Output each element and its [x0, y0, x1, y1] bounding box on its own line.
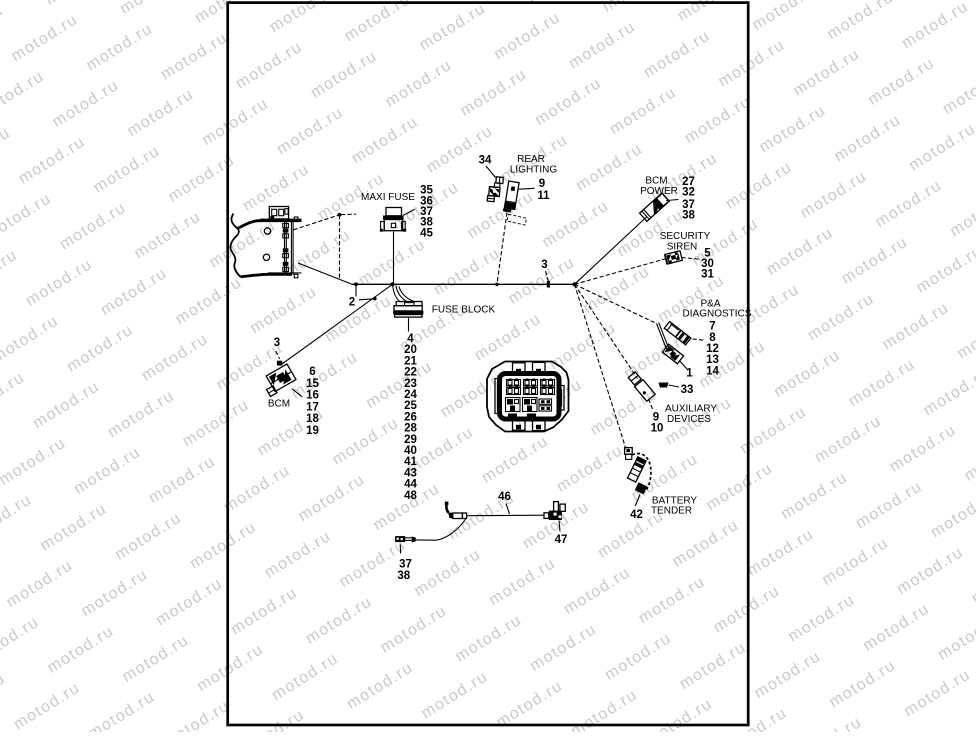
svg-text:MAXI FUSE: MAXI FUSE: [361, 192, 415, 203]
svg-text:TENDER: TENDER: [651, 505, 692, 516]
svg-text:2: 2: [349, 297, 355, 309]
svg-text:45: 45: [420, 227, 433, 239]
svg-text:12: 12: [706, 343, 719, 355]
svg-text:POWER: POWER: [640, 186, 678, 197]
svg-text:25: 25: [404, 400, 417, 412]
svg-text:42: 42: [630, 509, 643, 521]
svg-text:LIGHTING: LIGHTING: [510, 164, 557, 175]
svg-text:14: 14: [706, 365, 719, 377]
svg-text:22: 22: [404, 367, 417, 379]
svg-text:48: 48: [404, 490, 417, 502]
svg-text:6: 6: [309, 366, 315, 378]
svg-text:13: 13: [706, 354, 719, 366]
svg-text:40: 40: [404, 445, 417, 457]
svg-text:23: 23: [404, 378, 417, 390]
svg-text:33: 33: [681, 384, 694, 396]
svg-text:21: 21: [404, 355, 417, 367]
svg-text:26: 26: [404, 411, 417, 423]
svg-text:32: 32: [682, 187, 695, 199]
svg-text:46: 46: [498, 491, 511, 503]
svg-text:17: 17: [306, 401, 319, 413]
svg-text:28: 28: [404, 423, 417, 435]
svg-text:11: 11: [537, 190, 550, 202]
svg-text:8: 8: [709, 332, 716, 344]
svg-text:7: 7: [709, 321, 715, 333]
svg-text:FUSE BLOCK: FUSE BLOCK: [432, 304, 496, 315]
svg-text:24: 24: [404, 389, 417, 401]
svg-text:38: 38: [682, 209, 695, 221]
svg-text:31: 31: [701, 269, 714, 281]
svg-text:AUXILIARY: AUXILIARY: [665, 404, 717, 415]
svg-text:43: 43: [404, 467, 417, 479]
svg-text:DIAGNOSTICS: DIAGNOSTICS: [683, 309, 752, 320]
svg-text:3: 3: [541, 259, 547, 271]
svg-text:SIREN: SIREN: [667, 241, 698, 252]
svg-text:4: 4: [407, 333, 414, 345]
svg-text:41: 41: [404, 456, 417, 468]
svg-text:9: 9: [539, 178, 545, 190]
svg-text:DEVICES: DEVICES: [667, 414, 711, 425]
svg-text:44: 44: [404, 479, 417, 491]
svg-text:20: 20: [404, 344, 417, 356]
svg-text:37: 37: [399, 558, 412, 570]
svg-text:BCM: BCM: [645, 175, 667, 186]
svg-text:18: 18: [306, 413, 319, 425]
svg-text:29: 29: [404, 434, 417, 446]
svg-text:10: 10: [651, 422, 664, 434]
svg-text:19: 19: [306, 425, 319, 437]
svg-text:34: 34: [479, 154, 492, 166]
svg-text:REAR: REAR: [517, 154, 545, 165]
svg-text:BCM: BCM: [268, 398, 290, 409]
svg-text:1: 1: [686, 368, 693, 380]
svg-text:3: 3: [274, 337, 280, 349]
svg-text:16: 16: [306, 390, 319, 402]
svg-text:47: 47: [555, 534, 568, 546]
svg-text:15: 15: [306, 378, 319, 390]
svg-text:38: 38: [397, 570, 410, 582]
